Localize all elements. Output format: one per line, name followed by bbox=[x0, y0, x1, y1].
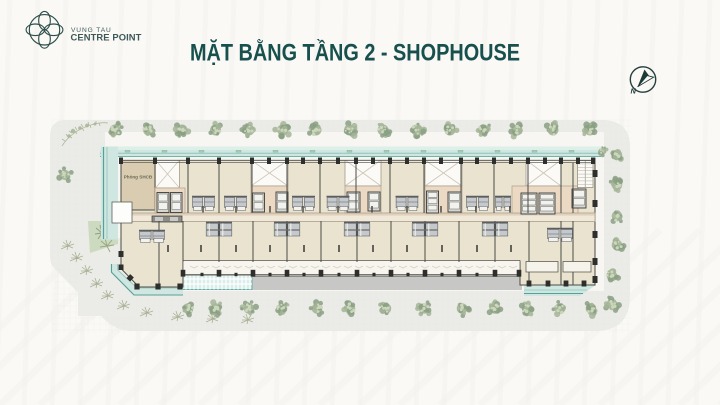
svg-text:Phòng SHCĐ: Phòng SHCĐ bbox=[124, 175, 153, 180]
svg-text:CENTRE POINT: CENTRE POINT bbox=[71, 32, 142, 43]
svg-text:N: N bbox=[631, 87, 637, 96]
svg-text:MẶT BẰNG TẦNG 2 - SHOPHOUSE: MẶT BẰNG TẦNG 2 - SHOPHOUSE bbox=[190, 39, 520, 67]
